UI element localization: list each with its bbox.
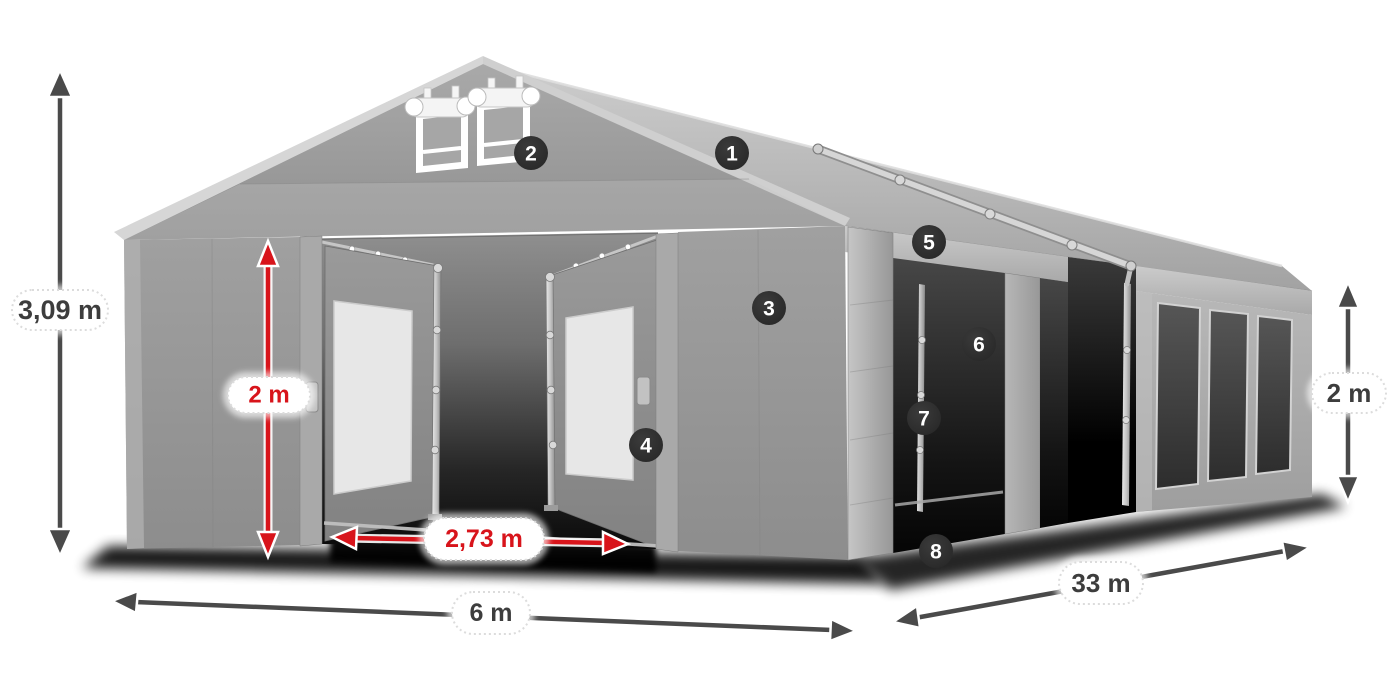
side-window (1208, 310, 1248, 481)
dim-side-height: 2 m (1307, 282, 1391, 502)
svg-text:5: 5 (923, 232, 935, 255)
arrowhead-down-icon (1337, 476, 1359, 502)
callout-badge-4: 4 (629, 428, 663, 462)
callout-badge-1: 1 (715, 136, 749, 170)
arrowhead-down-icon (48, 529, 72, 556)
callout-badge-2: 2 (514, 136, 548, 170)
side-window (1256, 316, 1292, 474)
callout-badge-8: 8 (919, 534, 953, 568)
dimension-label-entrance-width: 2,73 m (445, 525, 523, 553)
svg-text:3: 3 (763, 298, 775, 321)
svg-text:2: 2 (525, 143, 537, 166)
dimension-label-side-height: 2 m (1327, 378, 1372, 408)
arrowhead-left-icon (893, 606, 920, 628)
door-window-panel (566, 307, 633, 480)
entrance (300, 233, 678, 552)
callout-badge-7: 7 (907, 401, 941, 435)
dimension-label-entrance-height: 2 m (248, 382, 289, 409)
tent-illustration: 3,09 m 2 m 2,73 m 6 m 33 (0, 0, 1400, 700)
arrowhead-up-icon (1337, 282, 1359, 308)
entrance-post-right (656, 233, 678, 552)
arrowhead-right-icon (830, 619, 856, 641)
front-wall-right (678, 226, 848, 560)
svg-text:7: 7 (918, 408, 930, 431)
side-mullion-column (1005, 273, 1040, 534)
svg-text:6: 6 (973, 334, 985, 357)
arrowhead-left-icon (112, 591, 138, 613)
side-opening-bay (893, 258, 1005, 553)
tent-diagram: 3,09 m 2 m 2,73 m 6 m 33 (0, 0, 1400, 700)
side-opening-bay (1040, 278, 1068, 528)
dimension-label-front-width: 6 m (469, 599, 512, 627)
svg-text:1: 1 (726, 143, 738, 166)
arrowhead-up-icon (48, 70, 72, 97)
svg-text:4: 4 (640, 435, 652, 458)
callout-badge-3: 3 (752, 291, 786, 325)
door-handle (637, 377, 650, 405)
side-window (1156, 303, 1200, 489)
dim-total-height: 3,09 m (7, 70, 113, 556)
dim-front-width: 6 m (112, 587, 856, 641)
corner-column (848, 227, 893, 560)
dimension-label-total-height: 3,09 m (18, 295, 102, 325)
svg-text:8: 8 (930, 541, 942, 564)
callout-badge-6: 6 (962, 327, 996, 361)
entrance-door-left (322, 242, 443, 541)
callout-badge-5: 5 (912, 225, 946, 259)
door-window-panel (334, 301, 412, 494)
dimension-label-side-length: 33 m (1071, 568, 1130, 598)
arrowhead-right-icon (1282, 541, 1310, 562)
